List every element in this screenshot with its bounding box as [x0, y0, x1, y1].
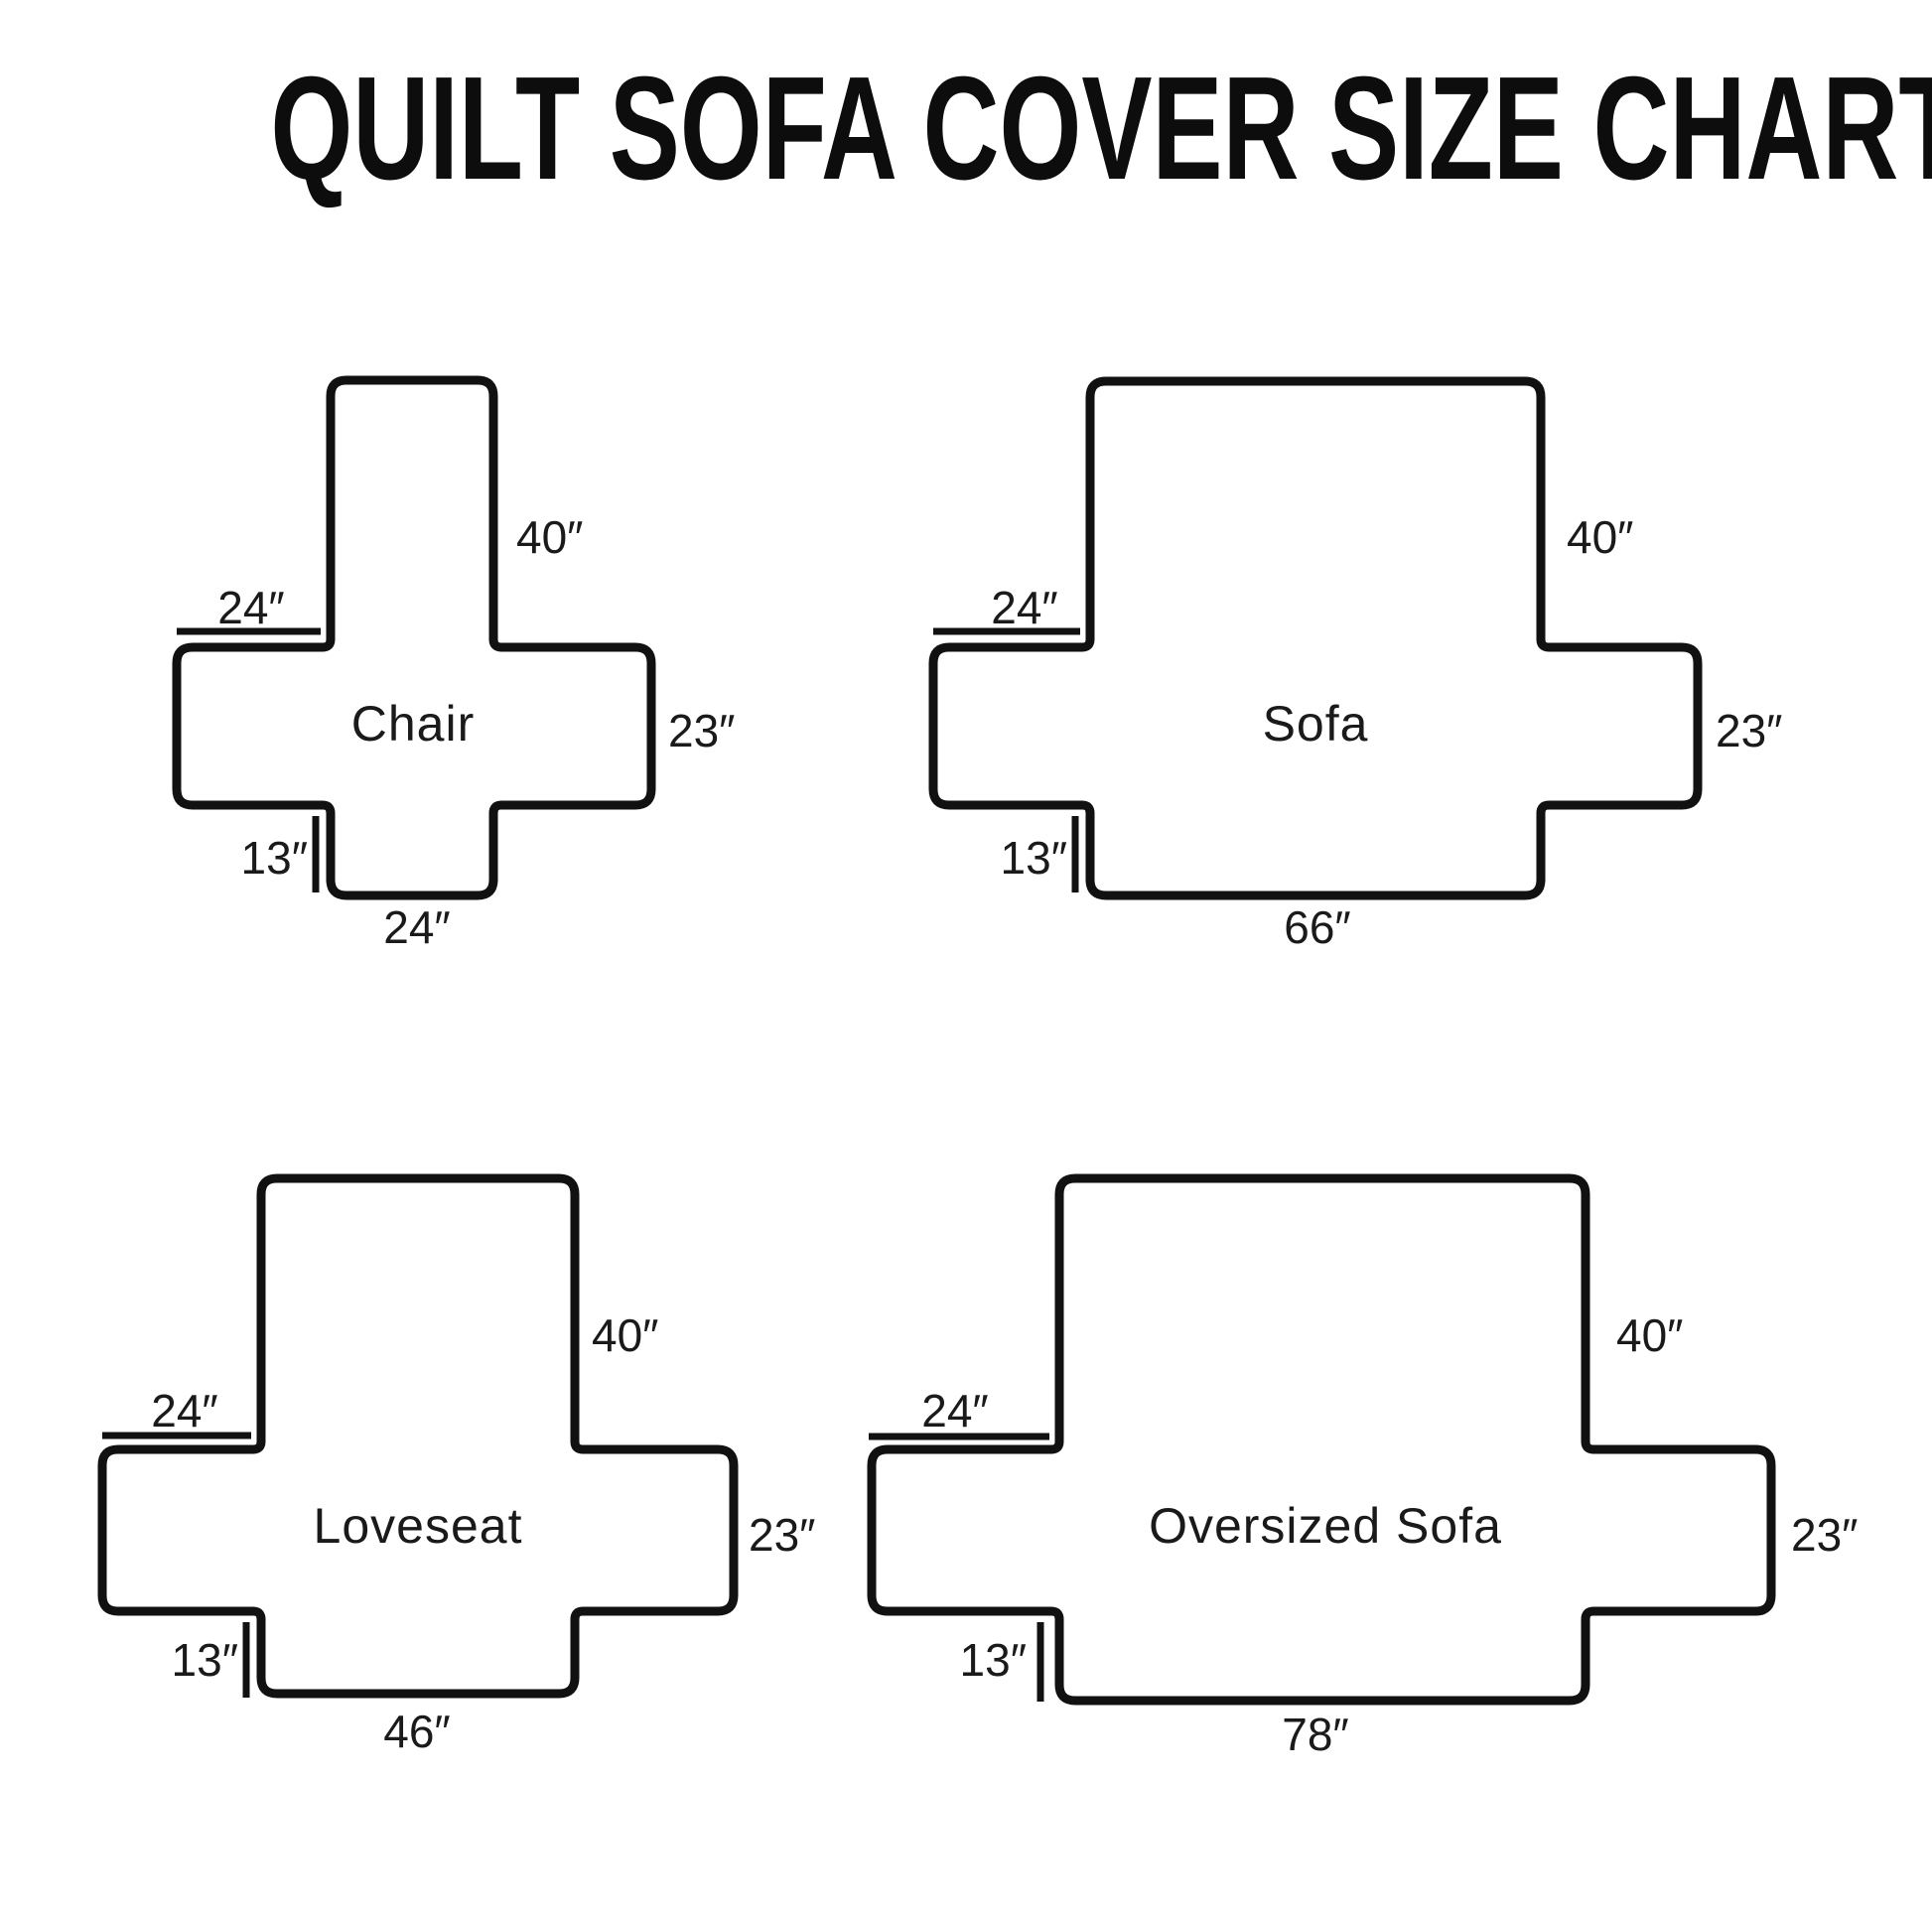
- loveseat-front-drop-label: 13″: [172, 1634, 238, 1686]
- loveseat-name-label: Loveseat: [314, 1498, 523, 1554]
- chair-diagram: 40″ 24″ Chair 23″ 13″ 24″: [177, 380, 735, 953]
- loveseat-seat-width-label: 46″: [383, 1706, 450, 1757]
- oversized-sofa-side-height-label: 23″: [1791, 1509, 1858, 1561]
- chair-arm-width-label: 24″: [217, 582, 284, 633]
- chair-side-height-label: 23″: [668, 705, 735, 756]
- oversized-sofa-back-height-label: 40″: [1616, 1309, 1683, 1361]
- chair-seat-width-label: 24″: [383, 901, 450, 953]
- oversized-sofa-arm-width-label: 24″: [921, 1385, 988, 1437]
- chair-front-drop-label: 13″: [241, 832, 308, 884]
- sofa-side-height-label: 23″: [1716, 705, 1782, 756]
- sofa-outline: [933, 381, 1698, 895]
- sofa-front-drop-label: 13″: [1001, 832, 1067, 884]
- oversized-sofa-name-label: Oversized Sofa: [1149, 1498, 1502, 1554]
- loveseat-back-height-label: 40″: [592, 1309, 658, 1361]
- chair-name-label: Chair: [351, 696, 475, 752]
- chair-back-height-label: 40″: [516, 511, 583, 563]
- sofa-arm-width-label: 24″: [991, 582, 1057, 633]
- chair-outline: [177, 380, 651, 895]
- loveseat-side-height-label: 23″: [749, 1509, 815, 1561]
- loveseat-arm-width-label: 24″: [151, 1385, 217, 1437]
- sofa-seat-width-label: 66″: [1284, 901, 1350, 953]
- oversized-sofa-front-drop-label: 13″: [960, 1634, 1027, 1686]
- sofa-back-height-label: 40″: [1567, 511, 1633, 563]
- sofa-diagram: 40″ 24″ Sofa 23″ 13″ 66″: [933, 381, 1782, 953]
- diagram-canvas: 40″ 24″ Chair 23″ 13″ 24″ 40″ 24″ Sofa 2…: [0, 0, 1932, 1918]
- loveseat-diagram: 40″ 24″ Loveseat 23″ 13″ 46″: [102, 1178, 815, 1757]
- quilt-sofa-cover-size-chart: QUILT SOFA COVER SIZE CHART 40″ 24″ Chai…: [0, 0, 1932, 1918]
- oversized-sofa-seat-width-label: 78″: [1282, 1709, 1348, 1760]
- sofa-name-label: Sofa: [1263, 696, 1369, 752]
- oversized-sofa-diagram: 40″ 24″ Oversized Sofa 23″ 13″ 78″: [869, 1178, 1858, 1760]
